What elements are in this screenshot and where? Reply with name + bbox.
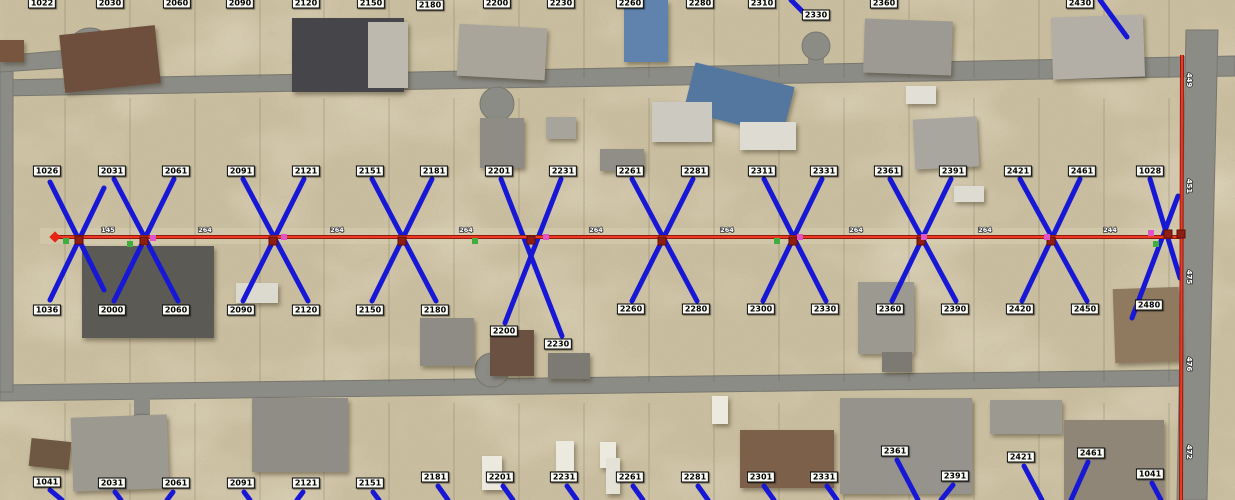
- aerial-map-canvas[interactable]: 1452642642642642642642642444494514754764…: [0, 0, 1235, 500]
- address-label-bottom_row[interactable]: 2391: [941, 471, 969, 482]
- address-label-top_edge[interactable]: 2090: [226, 0, 254, 9]
- address-label-top_edge[interactable]: 2150: [357, 0, 385, 9]
- address-label-lower_row[interactable]: 2390: [941, 304, 969, 315]
- address-label-lower_row[interactable]: 2200: [490, 326, 518, 337]
- address-label-upper_row[interactable]: 2461: [1068, 166, 1096, 177]
- address-label-lower_row[interactable]: 2150: [356, 305, 384, 316]
- crossing-node[interactable]: [527, 236, 535, 244]
- address-label-upper_row[interactable]: 2201: [485, 166, 513, 177]
- address-label-lower_row[interactable]: 2260: [617, 304, 645, 315]
- address-label-bottom_row[interactable]: 2461: [1077, 448, 1105, 459]
- address-label-top_edge[interactable]: 2310: [748, 0, 776, 9]
- address-label-lower_row[interactable]: 2420: [1006, 304, 1034, 315]
- segment-length-label: 264: [459, 226, 473, 234]
- building-roof: [420, 318, 474, 366]
- address-label-upper_row[interactable]: 1026: [33, 166, 61, 177]
- address-label-top_edge[interactable]: 1022: [28, 0, 56, 9]
- building-roof: [457, 24, 548, 81]
- address-label-lower_row[interactable]: 2480: [1135, 300, 1163, 311]
- crossing-node[interactable]: [140, 237, 148, 245]
- building-roof: [546, 117, 576, 139]
- crossing-node[interactable]: [658, 237, 666, 245]
- segment-length-label: 264: [978, 226, 992, 234]
- address-label-bottom_row[interactable]: 2121: [292, 478, 320, 489]
- address-label-bottom_row[interactable]: 2331: [810, 472, 838, 483]
- segment-length-label: 264: [849, 226, 863, 234]
- address-label-upper_row[interactable]: 2421: [1004, 166, 1032, 177]
- address-label-upper_row[interactable]: 2311: [748, 166, 776, 177]
- crossing-node[interactable]: [789, 237, 797, 245]
- building-roof: [480, 118, 524, 168]
- address-label-bottom_row[interactable]: 2261: [616, 472, 644, 483]
- segment-length-label: 264: [720, 226, 734, 234]
- valve-node-green[interactable]: [774, 238, 780, 244]
- address-label-bottom_row[interactable]: 1041: [33, 477, 61, 488]
- address-label-top_edge[interactable]: 2230: [547, 0, 575, 9]
- address-label-lower_row[interactable]: 2450: [1071, 304, 1099, 315]
- building-roof: [652, 102, 712, 142]
- building-roof: [712, 396, 728, 424]
- segment-length-label: 244: [1103, 226, 1117, 234]
- address-label-upper_row[interactable]: 2091: [227, 166, 255, 177]
- address-label-lower_row[interactable]: 2360: [876, 304, 904, 315]
- address-label-top_edge[interactable]: 2060: [163, 0, 191, 9]
- building-roof: [906, 86, 936, 104]
- address-label-bottom_row[interactable]: 2201: [486, 472, 514, 483]
- fitting-node-magenta[interactable]: [921, 234, 927, 240]
- building-roof: [863, 18, 953, 75]
- building-roof: [59, 25, 161, 93]
- address-label-bottom_row[interactable]: 2181: [421, 472, 449, 483]
- crossing-node[interactable]: [75, 236, 83, 244]
- address-label-bottom_row[interactable]: 2091: [227, 478, 255, 489]
- address-label-upper_row[interactable]: 2151: [356, 166, 384, 177]
- address-label-top_edge[interactable]: 2430: [1066, 0, 1094, 9]
- address-label-upper_row[interactable]: 2231: [549, 166, 577, 177]
- address-label-lower_row[interactable]: 2060: [162, 305, 190, 316]
- address-label-upper_row[interactable]: 2181: [420, 166, 448, 177]
- address-label-bottom_row[interactable]: 2301: [747, 472, 775, 483]
- address-label-bottom_row[interactable]: 2151: [356, 478, 384, 489]
- address-label-lower_row[interactable]: 2280: [682, 304, 710, 315]
- crossing-node[interactable]: [1164, 230, 1172, 238]
- segment-length-label: 264: [198, 226, 212, 234]
- address-label-bottom_row[interactable]: 2421: [1007, 452, 1035, 463]
- address-label-bottom_row[interactable]: 2231: [550, 472, 578, 483]
- address-label-upper_row[interactable]: 2061: [162, 166, 190, 177]
- address-label-lower_row[interactable]: 2120: [292, 305, 320, 316]
- address-label-bottom_row[interactable]: 2031: [98, 478, 126, 489]
- building-roof: [548, 353, 590, 379]
- segment-length-label-vertical: 451: [1185, 179, 1193, 194]
- fitting-node-magenta[interactable]: [150, 235, 156, 241]
- building-roof: [0, 40, 24, 62]
- cul-de-sac-bulb: [802, 32, 830, 60]
- fitting-node-magenta[interactable]: [1044, 234, 1050, 240]
- segment-length-label-vertical: 476: [1185, 357, 1193, 372]
- building-roof: [624, 0, 668, 62]
- address-label-upper_row[interactable]: 2331: [810, 166, 838, 177]
- segment-length-label: 264: [589, 226, 603, 234]
- address-label-bottom_row[interactable]: 2281: [681, 472, 709, 483]
- building-roof: [368, 22, 408, 88]
- building-roof: [82, 246, 214, 338]
- address-label-top_edge[interactable]: 2260: [616, 0, 644, 9]
- main-line-vertical[interactable]: [1181, 55, 1182, 500]
- fitting-node-magenta[interactable]: [543, 234, 549, 240]
- building-roof: [1051, 14, 1145, 79]
- building-roof: [490, 330, 534, 376]
- fitting-node-magenta[interactable]: [797, 234, 803, 240]
- address-label-upper_row[interactable]: 1028: [1136, 166, 1164, 177]
- building-roof: [990, 400, 1062, 434]
- address-label-lower_row[interactable]: 1036: [33, 305, 61, 316]
- segment-length-label: 264: [330, 226, 344, 234]
- address-label-upper_row[interactable]: 2121: [292, 166, 320, 177]
- address-label-upper_row[interactable]: 2361: [874, 166, 902, 177]
- address-label-lower_row[interactable]: 2090: [227, 305, 255, 316]
- address-label-lower_row[interactable]: 2180: [421, 305, 449, 316]
- address-label-top_edge[interactable]: 2030: [96, 0, 124, 9]
- address-label-bottom_row[interactable]: 2061: [162, 478, 190, 489]
- address-label-upper_row[interactable]: 2281: [681, 166, 709, 177]
- building-roof: [913, 116, 980, 169]
- crossing-node[interactable]: [269, 237, 277, 245]
- map-viewport[interactable]: 1452642642642642642642642444494514754764…: [0, 0, 1235, 500]
- building-roof: [1113, 287, 1182, 363]
- building-roof: [882, 352, 912, 372]
- segment-length-label-vertical: 475: [1185, 270, 1193, 285]
- valve-node-green[interactable]: [63, 238, 69, 244]
- segment-length-label-vertical: 449: [1185, 73, 1193, 88]
- segment-length-label: 145: [101, 226, 115, 234]
- address-label-upper_row[interactable]: 2031: [98, 166, 126, 177]
- cul-de-sac-bulb: [480, 87, 514, 121]
- building-roof: [556, 441, 574, 471]
- crossing-node[interactable]: [398, 237, 406, 245]
- building-roof: [252, 398, 348, 472]
- address-label-top_edge[interactable]: 2120: [292, 0, 320, 9]
- address-label-bottom_row[interactable]: 1041: [1136, 469, 1164, 480]
- building-roof: [954, 186, 984, 202]
- building-roof: [740, 122, 796, 150]
- address-label-lower_row[interactable]: 2230: [544, 339, 572, 350]
- address-label-top_edge[interactable]: 2180: [416, 0, 444, 11]
- building-roof: [29, 438, 72, 470]
- address-label-top_edge[interactable]: 2200: [483, 0, 511, 9]
- address-label-upper_row[interactable]: 2391: [939, 166, 967, 177]
- fitting-node-magenta[interactable]: [281, 234, 287, 240]
- address-label-top_edge[interactable]: 2330: [802, 10, 830, 21]
- valve-node-green[interactable]: [472, 238, 478, 244]
- building-roof: [858, 282, 914, 354]
- address-label-lower_row[interactable]: 2300: [747, 304, 775, 315]
- address-label-top_edge[interactable]: 2360: [870, 0, 898, 9]
- valve-node-green[interactable]: [127, 241, 133, 247]
- fitting-node-magenta[interactable]: [1148, 230, 1154, 236]
- address-label-top_edge[interactable]: 2280: [686, 0, 714, 9]
- address-label-lower_row[interactable]: 2000: [98, 305, 126, 316]
- valve-node-green[interactable]: [1153, 241, 1159, 247]
- address-label-bottom_row[interactable]: 2361: [881, 446, 909, 457]
- address-label-lower_row[interactable]: 2330: [811, 304, 839, 315]
- left-road: [0, 58, 13, 392]
- address-label-upper_row[interactable]: 2261: [616, 166, 644, 177]
- crossing-node[interactable]: [1177, 230, 1185, 238]
- segment-length-label-vertical: 472: [1185, 445, 1193, 460]
